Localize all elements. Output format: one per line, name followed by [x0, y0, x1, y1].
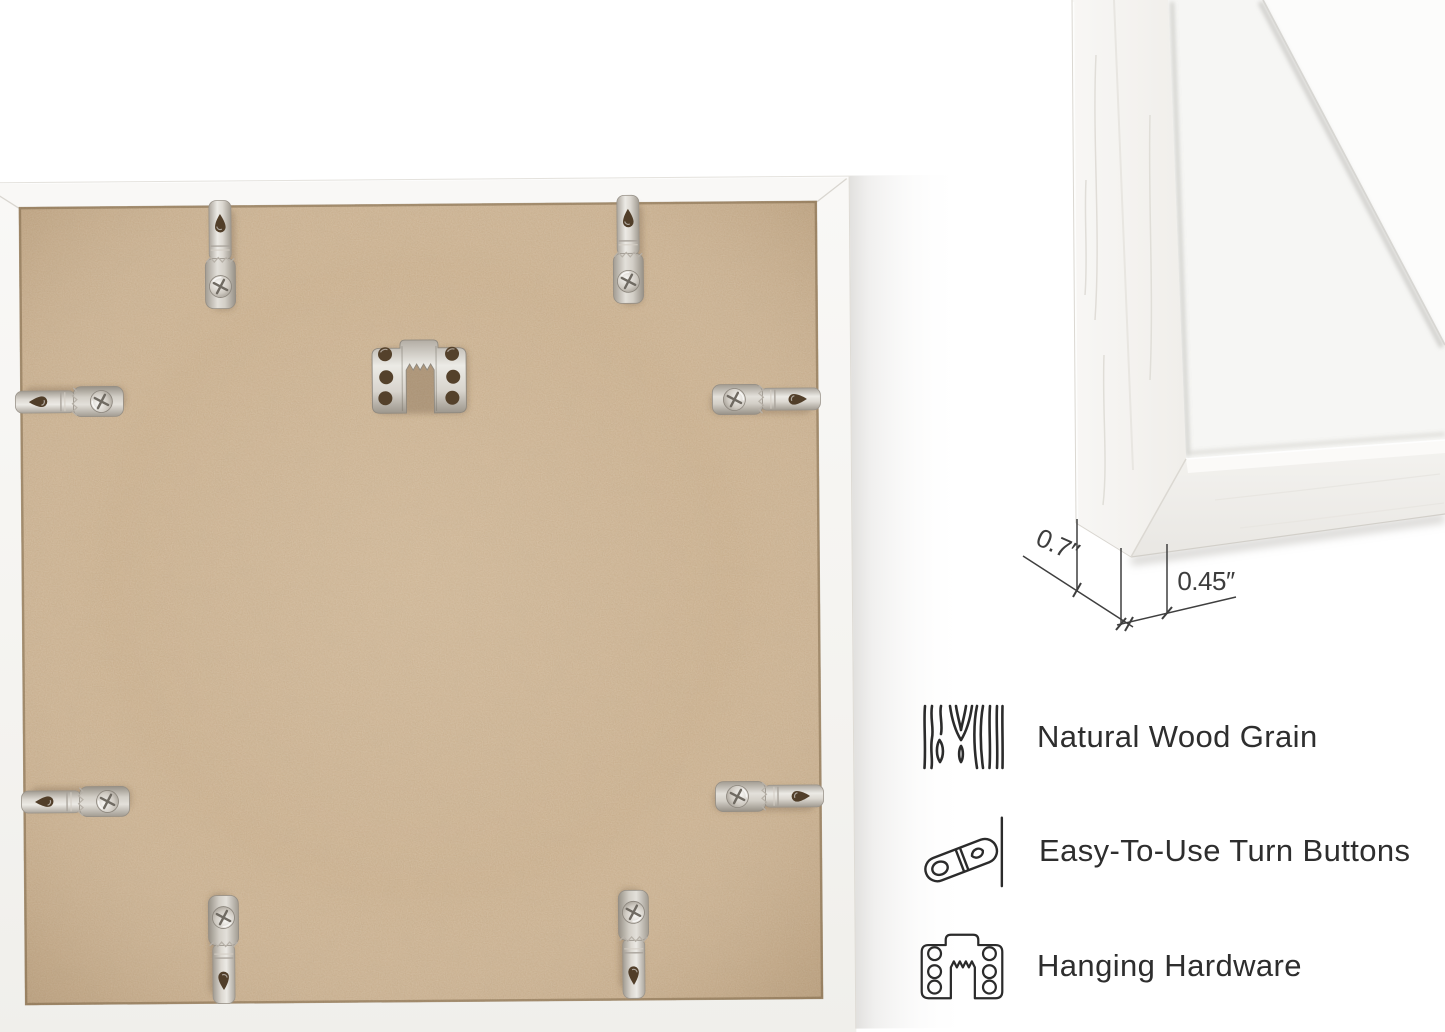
- turn-button: [618, 888, 649, 998]
- feature-label: Natural Wood Grain: [1037, 719, 1318, 755]
- turn-button: [15, 386, 125, 417]
- feature-label: Easy-To-Use Turn Buttons: [1039, 833, 1410, 869]
- turn-button: [21, 786, 131, 817]
- turn-button: [613, 195, 644, 305]
- frame-back-photo: [0, 0, 970, 1032]
- feature-item: Natural Wood Grain: [920, 701, 1440, 773]
- hanging-hardware-icon: [920, 933, 1004, 1000]
- turn-button: [205, 200, 236, 310]
- depth-dimension-label: 0.7″: [1032, 522, 1084, 567]
- sawtooth-hanger: [372, 340, 469, 415]
- turn-button: [713, 781, 823, 812]
- corner-moulding-vertical: [1072, 0, 1186, 557]
- wood-grain-icon: [920, 704, 1004, 770]
- mat-board: [1168, 0, 1445, 459]
- feature-item: Hanging Hardware: [920, 930, 1440, 1002]
- corner-detail-photo: 0.7″ 0.45″: [1010, 0, 1445, 660]
- turn-button-icon: [920, 814, 1006, 888]
- feature-item: Easy-To-Use Turn Buttons: [920, 815, 1440, 887]
- face-dimension-label: 0.45″: [1177, 566, 1235, 596]
- feature-label: Hanging Hardware: [1037, 948, 1302, 984]
- wall-shadow: [848, 175, 970, 1029]
- frame-backing: [19, 201, 823, 1005]
- turn-button: [710, 384, 820, 415]
- turn-button: [208, 893, 239, 1003]
